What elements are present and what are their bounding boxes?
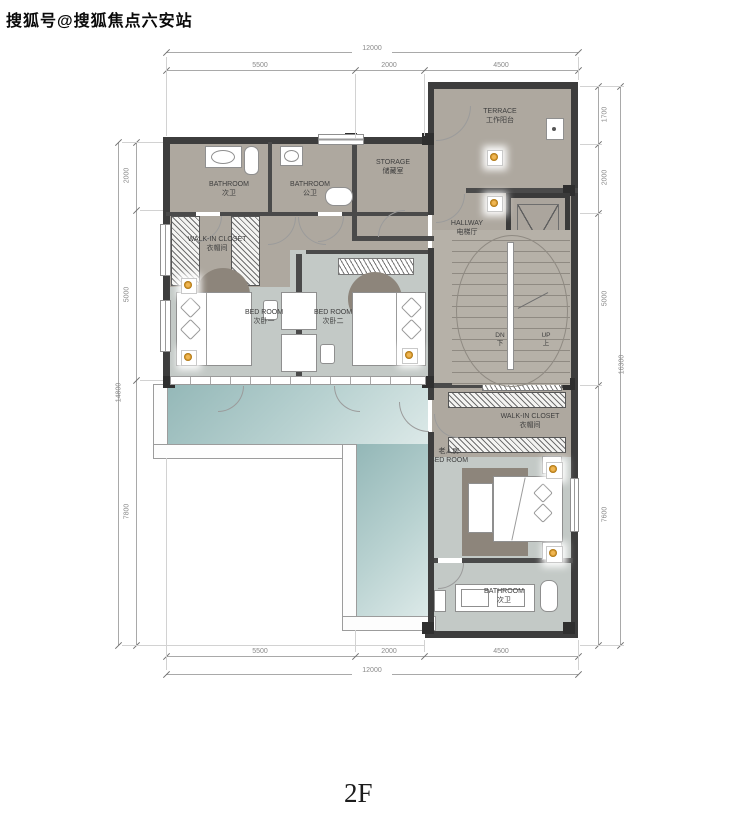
dim-ext	[355, 74, 356, 138]
dim-ext	[580, 385, 602, 386]
fixture-icon	[434, 590, 446, 612]
label-zh: 次卫	[474, 596, 534, 605]
label-zh: 公卫	[280, 189, 340, 198]
dim-label-bottom-seg2: 2000	[369, 647, 409, 656]
label-en: STORAGE	[363, 158, 423, 167]
label-zh: 次卧一	[234, 317, 294, 326]
label-en: BATHROOM	[199, 180, 259, 189]
sliding-glass-wall	[170, 376, 426, 385]
label-zh: 电梯厅	[437, 228, 497, 237]
toilet-icon	[244, 146, 259, 175]
label-en: WALK-IN CLOSET	[177, 235, 257, 244]
dim-ext	[424, 640, 425, 652]
ceiling-light-icon	[546, 546, 563, 563]
label-en: HALLWAY	[437, 219, 497, 228]
wall-post	[422, 622, 434, 634]
sink-basin-icon	[284, 150, 299, 162]
label-en: BED ROOM	[303, 308, 363, 317]
room-label-elder-bedroom: 老人房 BED ROOM	[419, 447, 479, 465]
dim-ext	[580, 144, 602, 145]
window-icon	[160, 300, 171, 352]
window-icon	[160, 224, 171, 276]
dim-label-top-total: 12000	[352, 44, 392, 53]
room-label-bathroom-top1: BATHROOM 次卫	[199, 180, 259, 198]
cabinet-icon	[468, 483, 493, 533]
dim-ext	[140, 380, 163, 381]
dim-ext	[580, 645, 624, 646]
room-label-walkin-upper: WALK-IN CLOSET 衣帽间	[177, 235, 257, 253]
ceiling-light-icon	[487, 150, 503, 166]
wall-spine-upper	[428, 82, 434, 215]
stairs-up-zh: 上	[536, 340, 556, 348]
stairs-dn-zh: 下	[490, 340, 510, 348]
dim-label-bottom-seg1: 5500	[240, 647, 280, 656]
terrace-railing-mid	[342, 444, 357, 630]
label-en: BED ROOM	[234, 308, 294, 317]
room-label-hallway: HALLWAY 电梯厅	[437, 219, 497, 237]
terrace-railing-bottom1	[153, 444, 357, 459]
label-en: BED ROOM	[419, 456, 479, 465]
room-label-terrace: TERRACE 工作阳台	[470, 107, 530, 125]
dim-label-right-seg1: 1700	[601, 95, 610, 135]
label-zh: 次卧二	[303, 317, 363, 326]
dim-line-right-segments	[598, 86, 599, 645]
ceiling-light-icon	[181, 350, 197, 366]
label-en: TERRACE	[470, 107, 530, 116]
dim-label-left-seg1: 2000	[123, 156, 132, 196]
wall-bath2-storage-divider	[352, 142, 357, 240]
room-label-bedroom2: BED ROOM 次卧二	[303, 308, 363, 326]
dim-line-top-segments	[166, 70, 578, 71]
room-label-bathroom-bottom: BATHROOM 次卫	[474, 587, 534, 605]
wall-bath1-bath2-divider	[268, 142, 272, 214]
terrace-railing-left	[153, 384, 168, 448]
dim-label-right-total: 16300	[618, 345, 627, 385]
dim-ext	[122, 645, 425, 646]
dim-label-left-seg2: 5000	[123, 275, 132, 315]
dim-label-top-seg3: 4500	[481, 61, 521, 70]
wall-outer-bottom	[425, 631, 578, 638]
watermark: 搜狐号@搜狐焦点六安站	[6, 7, 193, 31]
dim-ext	[424, 74, 425, 136]
room-label-storage: STORAGE 储藏室	[363, 158, 423, 176]
dim-ext	[578, 640, 579, 670]
wall-outer-right	[571, 82, 578, 638]
dim-label-bottom-total: 12000	[352, 666, 392, 675]
room-label-bathroom-top2: BATHROOM 公卫	[280, 180, 340, 198]
window-icon	[318, 134, 364, 145]
dim-ext	[580, 213, 602, 214]
label-en: WALK-IN CLOSET	[490, 412, 570, 421]
ceiling-light-icon	[402, 348, 418, 364]
stairs-down-label: DN 下	[490, 332, 510, 349]
dim-ext	[166, 57, 167, 136]
ceiling-light-icon	[546, 462, 563, 479]
dim-label-left-total: 14800	[115, 373, 124, 413]
window-icon	[570, 478, 579, 532]
dim-ext	[580, 86, 624, 87]
chair-icon	[320, 344, 335, 364]
bed-line	[396, 293, 397, 365]
label-zh: 衣帽间	[177, 244, 257, 253]
dim-ext	[122, 142, 163, 143]
label-zh: 老人房	[419, 447, 479, 456]
ceiling-light-icon	[487, 196, 503, 212]
label-zh: 工作阳台	[470, 116, 530, 125]
washing-machine-dot-icon	[552, 127, 556, 131]
wall-outer-top-left-block	[163, 137, 434, 144]
dim-ext	[140, 210, 163, 211]
dim-tick	[575, 671, 582, 678]
stairs-up-label: UP 上	[536, 332, 556, 349]
open-terrace-vertical	[356, 444, 428, 616]
dim-ext	[355, 630, 356, 652]
label-zh: 储藏室	[363, 167, 423, 176]
wall-post	[563, 622, 575, 634]
dim-label-right-seg2: 2000	[601, 158, 610, 198]
dim-label-right-seg4: 7600	[601, 495, 610, 535]
wall-outer-top-right-block	[428, 82, 578, 89]
dim-label-right-seg3: 5000	[601, 279, 610, 319]
wardrobe-icon	[448, 392, 566, 408]
wall-bedroom2-top	[306, 250, 428, 254]
dim-tick	[575, 49, 582, 56]
dim-ext	[578, 57, 579, 80]
toilet-icon	[540, 580, 558, 612]
dim-line-bottom-segments	[166, 656, 578, 657]
dim-line-left-segments	[136, 142, 137, 645]
dim-label-bottom-seg3: 4500	[481, 647, 521, 656]
open-terrace-horizontal	[167, 380, 428, 444]
room-label-bedroom1: BED ROOM 次卧一	[234, 308, 294, 326]
label-en: BATHROOM	[474, 587, 534, 596]
label-zh: 次卫	[199, 189, 259, 198]
dim-label-top-seg1: 5500	[240, 61, 280, 70]
desk-icon	[281, 334, 317, 372]
label-zh: 衣帽间	[490, 421, 570, 430]
stairs-center-rail	[507, 242, 514, 370]
room-label-walkin-right: WALK-IN CLOSET 衣帽间	[490, 412, 570, 430]
bed-line	[206, 293, 207, 365]
label-en: BATHROOM	[280, 180, 340, 189]
dim-ext	[166, 458, 167, 670]
ceiling-light-icon	[181, 278, 197, 294]
dim-label-left-seg3: 7800	[123, 492, 132, 532]
dim-tick	[115, 642, 122, 649]
floor-title: 2F	[344, 778, 373, 809]
sink-basin-icon	[211, 150, 235, 164]
dim-label-top-seg2: 2000	[369, 61, 409, 70]
bed-icon	[493, 476, 563, 542]
